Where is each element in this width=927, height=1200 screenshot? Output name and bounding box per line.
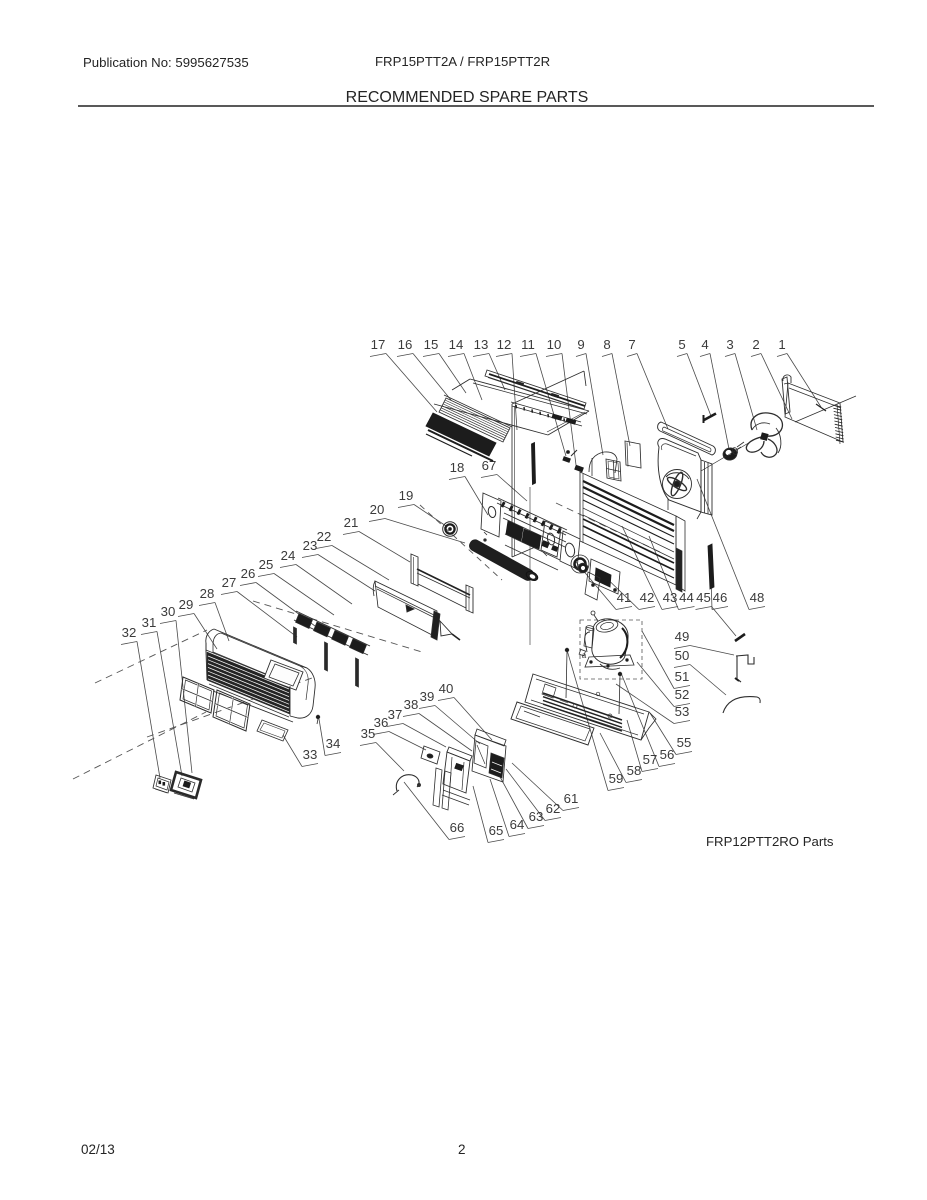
- svg-text:37: 37: [388, 707, 403, 722]
- svg-text:a: a: [582, 651, 587, 660]
- svg-text:33: 33: [303, 747, 318, 762]
- svg-text:14: 14: [449, 337, 464, 352]
- svg-text:10: 10: [547, 337, 562, 352]
- svg-text:44: 44: [679, 590, 694, 605]
- svg-text:1: 1: [778, 337, 785, 352]
- svg-text:2: 2: [752, 337, 759, 352]
- svg-text:56: 56: [660, 747, 675, 762]
- svg-text:26: 26: [241, 566, 256, 581]
- svg-text:9: 9: [577, 337, 584, 352]
- svg-text:51: 51: [675, 669, 690, 684]
- svg-text:15: 15: [424, 337, 439, 352]
- svg-text:8: 8: [603, 337, 610, 352]
- svg-text:13: 13: [474, 337, 489, 352]
- svg-text:27: 27: [222, 575, 237, 590]
- svg-text:Publication No: 5995627535: Publication No: 5995627535: [83, 55, 249, 70]
- svg-text:19: 19: [399, 488, 414, 503]
- svg-text:34: 34: [326, 736, 341, 751]
- svg-text:25: 25: [259, 557, 274, 572]
- svg-text:55: 55: [677, 735, 692, 750]
- svg-text:42: 42: [640, 590, 655, 605]
- svg-text:23: 23: [303, 538, 318, 553]
- svg-text:29: 29: [179, 597, 194, 612]
- svg-text:39: 39: [420, 689, 435, 704]
- svg-text:48: 48: [750, 590, 765, 605]
- svg-text:3: 3: [726, 337, 733, 352]
- svg-text:57: 57: [643, 752, 658, 767]
- svg-text:49: 49: [675, 629, 690, 644]
- svg-text:2: 2: [458, 1142, 466, 1157]
- svg-text:52: 52: [675, 687, 690, 702]
- svg-text:24: 24: [281, 548, 296, 563]
- svg-text:30: 30: [161, 604, 176, 619]
- svg-text:43: 43: [663, 590, 678, 605]
- svg-text:02/13: 02/13: [81, 1142, 115, 1157]
- svg-text:65: 65: [489, 823, 504, 838]
- svg-text:53: 53: [675, 704, 690, 719]
- svg-text:22: 22: [317, 529, 332, 544]
- svg-text:5: 5: [678, 337, 685, 352]
- svg-text:21: 21: [344, 515, 359, 530]
- svg-text:RECOMMENDED SPARE PARTS: RECOMMENDED SPARE PARTS: [346, 89, 589, 106]
- svg-text:66: 66: [450, 820, 465, 835]
- svg-text:38: 38: [404, 697, 419, 712]
- svg-text:11: 11: [521, 337, 535, 352]
- svg-text:61: 61: [564, 791, 579, 806]
- svg-text:12: 12: [497, 337, 512, 352]
- svg-text:32: 32: [122, 625, 137, 640]
- svg-text:28: 28: [200, 586, 215, 601]
- svg-text:64: 64: [510, 817, 525, 832]
- svg-text:41: 41: [617, 590, 632, 605]
- svg-text:36: 36: [374, 715, 389, 730]
- svg-text:50: 50: [675, 648, 690, 663]
- svg-text:18: 18: [450, 460, 465, 475]
- svg-text:63: 63: [529, 809, 544, 824]
- svg-text:46: 46: [713, 590, 728, 605]
- svg-text:20: 20: [370, 502, 385, 517]
- svg-text:FRP15PTT2A / FRP15PTT2R: FRP15PTT2A / FRP15PTT2R: [375, 54, 550, 69]
- svg-text:4: 4: [701, 337, 708, 352]
- svg-text:31: 31: [142, 615, 157, 630]
- svg-text:FRP12PTT2RO Parts: FRP12PTT2RO Parts: [706, 834, 834, 849]
- svg-text:16: 16: [398, 337, 413, 352]
- svg-text:17: 17: [371, 337, 386, 352]
- svg-text:45: 45: [696, 590, 711, 605]
- svg-text:62: 62: [546, 801, 561, 816]
- svg-text:7: 7: [628, 337, 635, 352]
- svg-text:59: 59: [609, 771, 624, 786]
- svg-text:58: 58: [627, 763, 642, 778]
- svg-text:40: 40: [439, 681, 454, 696]
- svg-text:67: 67: [482, 458, 497, 473]
